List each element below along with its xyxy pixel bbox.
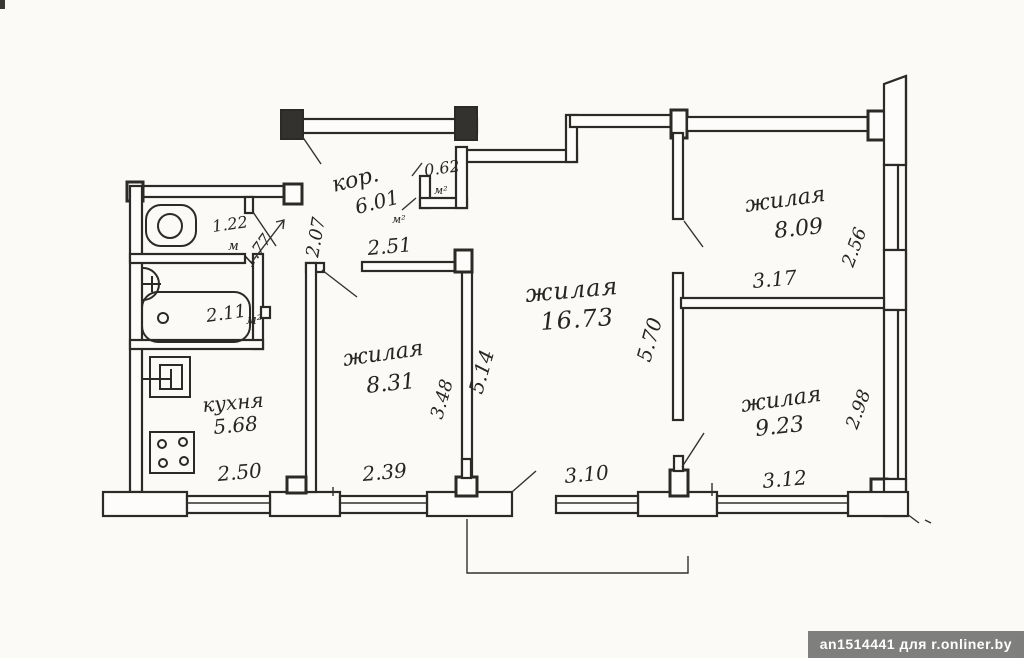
wall-segment <box>283 119 477 133</box>
floorplan-page: 1.22 м 2.11 м² кор. 6.01 м² 0.62 м² кухн… <box>0 0 1024 658</box>
room-label-bathroom-unit: м² <box>246 313 262 328</box>
wall-segment <box>884 250 906 310</box>
balcony-door-leaf <box>512 471 536 492</box>
dim-2-51: 2.51 <box>365 232 412 260</box>
door-block <box>456 477 477 496</box>
watermark-text: an1514441 для r.onliner.by <box>820 636 1012 652</box>
toilet-bowl-icon <box>158 214 182 238</box>
door-block <box>455 250 472 272</box>
watermark-badge: an1514441 для r.onliner.by <box>808 631 1024 658</box>
dim-3-48: 3.48 <box>427 377 458 421</box>
room-label-living-bot-right-name: жилая <box>739 382 823 418</box>
door-block <box>287 477 306 493</box>
wall-stub <box>245 197 253 213</box>
wall-segment <box>362 262 462 271</box>
window <box>556 496 638 513</box>
room-label-kitchen-area: 5.68 <box>212 411 258 439</box>
scan-artifact <box>0 0 5 9</box>
floorplan-drawing: 1.22 м 2.11 м² кор. 6.01 м² 0.62 м² кухн… <box>0 0 1024 658</box>
dim-5-70: 5.70 <box>632 315 667 365</box>
stove-burner-icon <box>159 459 167 467</box>
wall-segment <box>270 492 340 516</box>
dimension-stem <box>462 459 471 478</box>
dim-3-10: 3.10 <box>563 460 610 488</box>
dim-3-12: 3.12 <box>761 465 807 493</box>
wall-segment <box>884 76 906 165</box>
wall-segment <box>570 115 673 127</box>
door-block <box>670 470 688 496</box>
dim-2-56: 2.56 <box>838 225 872 271</box>
scan-artifact <box>925 520 931 523</box>
window-segment <box>884 165 898 250</box>
room-831-door-leaf <box>322 270 357 297</box>
room-label-bathroom-area: 2.11 <box>204 301 248 328</box>
door-block <box>455 107 477 140</box>
bathtub-drain-icon <box>158 313 168 323</box>
room-label-toilet-unit: м <box>228 239 239 254</box>
balcony-line <box>467 519 688 573</box>
entry-door-leaf <box>302 136 321 164</box>
wall-segment <box>103 492 187 516</box>
wall-segment <box>673 133 683 219</box>
room-label-corridor-unit: м² <box>392 213 406 226</box>
room-label-living-top-right-name: жилая <box>743 182 827 218</box>
wall-stub <box>261 307 270 318</box>
dimension-stem <box>674 456 683 471</box>
room-label-closet-unit: м² <box>434 184 448 197</box>
wall-segment <box>681 298 884 308</box>
dim-2-98: 2.98 <box>842 387 876 433</box>
door-leaves <box>251 136 704 492</box>
room-label-living-large-area: 16.73 <box>539 303 614 336</box>
window <box>187 496 270 513</box>
wall-segment <box>130 254 245 263</box>
exterior-walls <box>103 76 908 516</box>
stove-burner-icon <box>158 440 166 448</box>
dim-2-07: 2.07 <box>302 215 330 260</box>
dim-3-17: 3.17 <box>751 265 798 293</box>
window <box>717 496 848 513</box>
room-label-living-small-area: 8.31 <box>365 369 416 399</box>
wall-segment <box>458 150 577 162</box>
closet-leader-line <box>412 163 422 176</box>
dim-2-39: 2.39 <box>360 458 408 486</box>
wall-segment <box>306 263 316 492</box>
wall-segment <box>131 186 301 197</box>
room-label-living-top-right-area: 8.09 <box>773 214 824 244</box>
room-label-toilet-area: 1.22 <box>211 212 249 236</box>
room-label-living-small-name: жилая <box>341 336 425 372</box>
toilet-fixture <box>146 205 196 246</box>
balcony-outline <box>467 519 688 573</box>
wall-segment <box>848 492 908 516</box>
window-segment <box>884 310 898 479</box>
door-block <box>281 110 303 139</box>
room-809-door-leaf <box>684 221 703 247</box>
stove-burner-icon <box>179 438 187 446</box>
stove-fixture <box>150 432 194 473</box>
door-block <box>284 184 302 204</box>
window <box>340 496 427 513</box>
room-label-living-bot-right-area: 9.23 <box>754 412 805 442</box>
closet-leader-line <box>402 198 416 210</box>
room-923-door-leaf <box>682 433 704 467</box>
window-wall <box>687 117 870 131</box>
dim-2-50: 2.50 <box>215 458 263 486</box>
wall-segment <box>673 273 683 420</box>
dim-1-77: 1.77 <box>239 230 276 271</box>
stove-burner-icon <box>180 457 188 465</box>
